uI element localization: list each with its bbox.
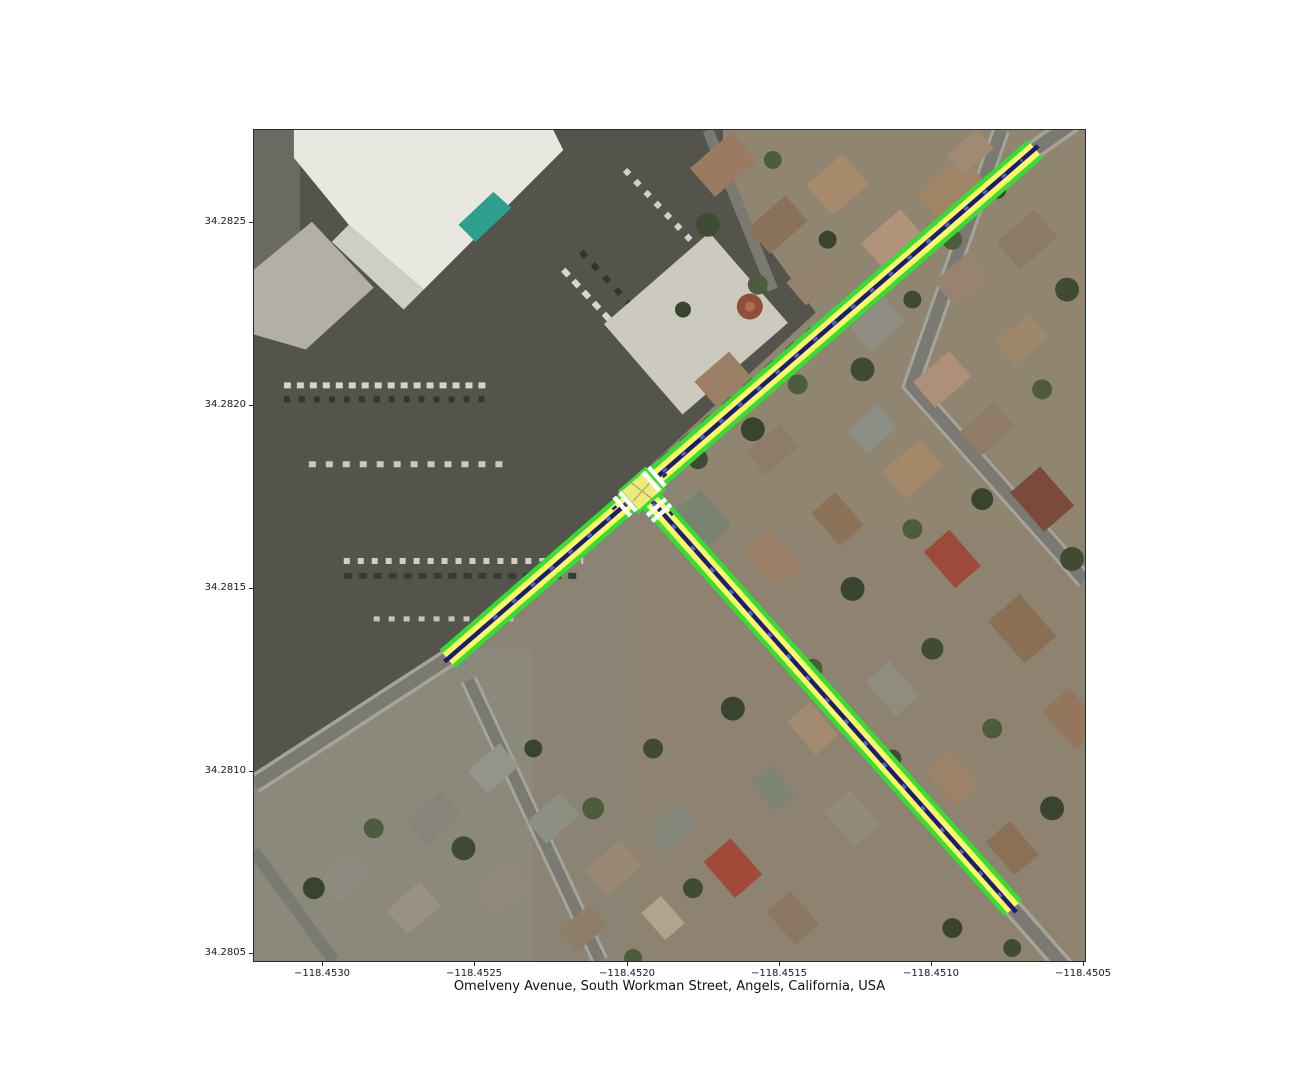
- x-tick-mark: [931, 962, 932, 966]
- x-tick-mark: [322, 962, 323, 966]
- y-tick-mark: [249, 222, 253, 223]
- y-tick-mark: [249, 405, 253, 406]
- y-tick-label: 34.2805: [188, 947, 246, 958]
- y-tick-mark: [249, 588, 253, 589]
- y-tick-label: 34.2815: [188, 582, 246, 593]
- y-tick-mark: [249, 953, 253, 954]
- y-tick-mark: [249, 771, 253, 772]
- figure-canvas: −118.4530 −118.4525 −118.4520 −118.4515 …: [0, 0, 1307, 1080]
- x-tick-label: −118.4505: [1038, 968, 1128, 979]
- x-tick-label: −118.4510: [886, 968, 976, 979]
- x-tick-mark: [474, 962, 475, 966]
- map-caption: Omelveny Avenue, South Workman Street, A…: [253, 979, 1086, 994]
- x-tick-label: −118.4515: [734, 968, 824, 979]
- map-figure-svg: [254, 130, 1085, 961]
- y-tick-label: 34.2820: [188, 399, 246, 410]
- y-tick-label: 34.2810: [188, 765, 246, 776]
- x-tick-mark: [779, 962, 780, 966]
- map-plot-area: [253, 129, 1086, 962]
- x-tick-label: −118.4525: [429, 968, 519, 979]
- x-tick-mark: [627, 962, 628, 966]
- y-tick-label: 34.2825: [188, 216, 246, 227]
- x-tick-mark: [1083, 962, 1084, 966]
- x-tick-label: −118.4520: [582, 968, 672, 979]
- x-tick-label: −118.4530: [277, 968, 367, 979]
